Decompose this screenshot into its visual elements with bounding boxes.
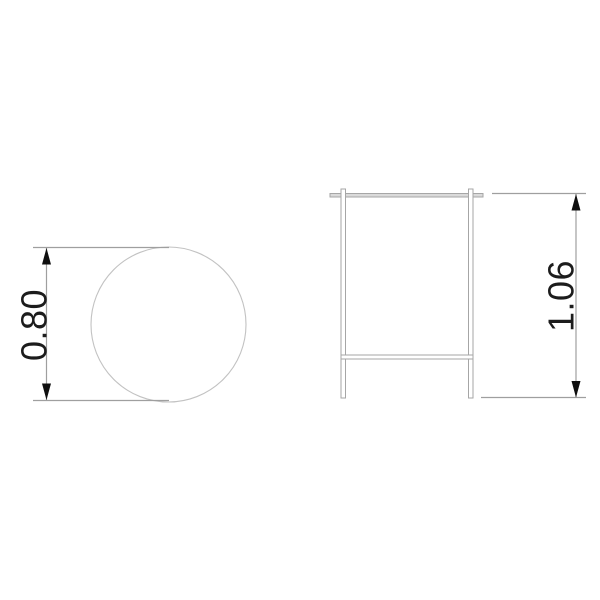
- front-view: 1.06: [330, 189, 586, 398]
- arrow-down-icon: [42, 384, 51, 401]
- tabletop-circle-outline: [91, 247, 246, 402]
- stretcher-bar: [341, 355, 473, 359]
- arrow-up-icon: [572, 194, 581, 211]
- top-view: 0.80: [14, 247, 246, 402]
- right-leg: [469, 189, 474, 398]
- arrow-up-icon: [42, 248, 51, 265]
- height-dimension-label: 1.06: [541, 260, 582, 332]
- drawing-svg: 0.80 1.06: [0, 0, 600, 600]
- tabletop-edge: [330, 194, 483, 198]
- technical-drawing-canvas: 0.80 1.06: [0, 0, 600, 600]
- diameter-dimension-label: 0.80: [14, 289, 55, 361]
- left-leg: [341, 189, 346, 398]
- arrow-down-icon: [572, 381, 581, 398]
